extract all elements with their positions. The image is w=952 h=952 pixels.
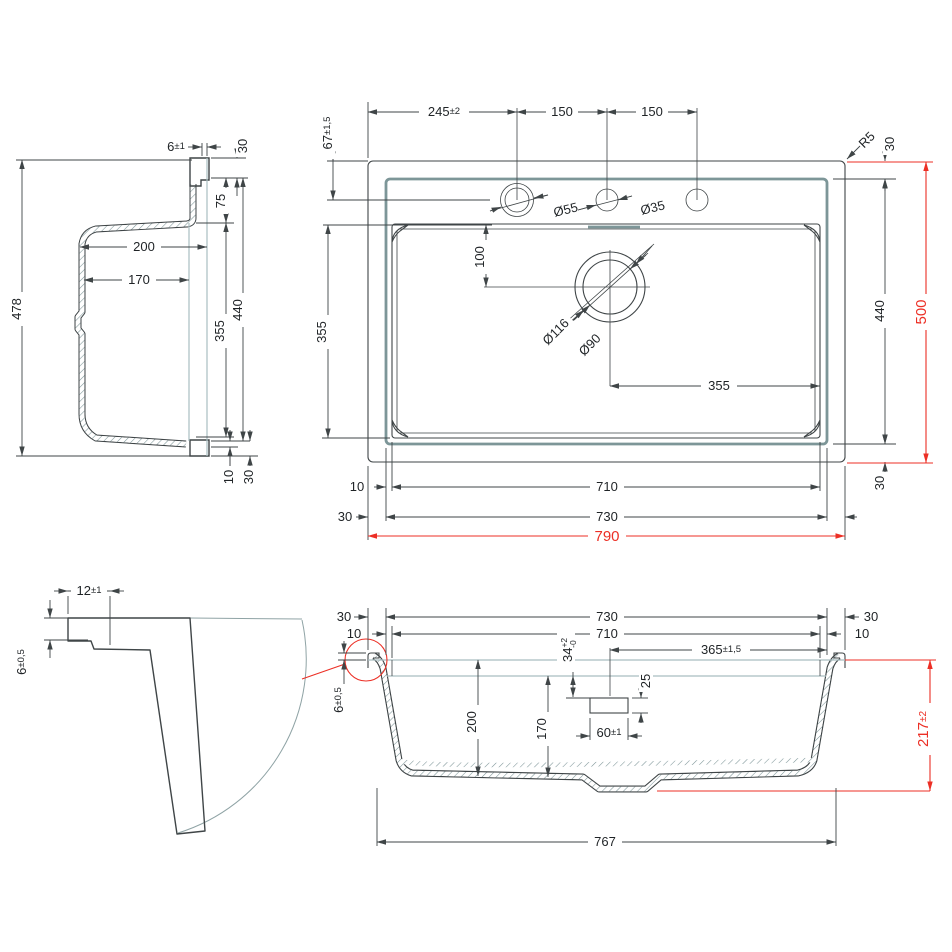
dim-label: 200 bbox=[133, 239, 155, 254]
dim-label: 730 bbox=[596, 609, 618, 624]
dim-top-drain-diameters: Ø116 Ø90 bbox=[536, 244, 654, 362]
dim-label: 365±1,5 bbox=[701, 642, 741, 657]
dim-label: 355 bbox=[708, 378, 730, 393]
dim-side-6: 6±1 bbox=[167, 139, 221, 156]
dim-section-25: 25 bbox=[632, 670, 653, 723]
dim-label: Ø55 bbox=[552, 199, 579, 220]
technical-drawing-canvas: 6±1 30 75 200 170 355 440 478 10 bbox=[0, 0, 952, 952]
dim-section-34: 34+2-0 bbox=[557, 630, 578, 697]
dim-label: Ø35 bbox=[639, 197, 666, 218]
dim-section-6: 6±0,5 bbox=[331, 641, 366, 713]
dim-section-365: 365±1,5 bbox=[610, 642, 827, 657]
dim-section-60: 60±1 bbox=[576, 718, 642, 740]
dim-section-170: 170 bbox=[534, 676, 549, 777]
dim-label: 100 bbox=[472, 246, 487, 268]
dim-label: 170 bbox=[128, 272, 150, 287]
dim-top-355-left: 355 bbox=[314, 225, 390, 438]
dim-top-hole-35: Ø35 bbox=[578, 196, 666, 218]
dim-detail-12: 12±1 bbox=[54, 583, 124, 645]
dim-label: 25 bbox=[638, 674, 653, 688]
dim-side-30-top: 30 bbox=[211, 135, 250, 196]
bowl-edge bbox=[392, 224, 820, 438]
dim-label: 60±1 bbox=[597, 725, 622, 740]
dim-label: 6±0,5 bbox=[331, 687, 346, 713]
drain-pocket bbox=[590, 698, 628, 713]
rim-cross-section bbox=[68, 618, 205, 834]
dim-label: 355 bbox=[212, 320, 227, 342]
side-top-lip bbox=[190, 158, 209, 186]
dim-top-bottom-rows: 10 710 30 730 790 bbox=[338, 442, 857, 545]
dim-side-355: 355 bbox=[196, 223, 234, 437]
dim-side-170: 170 bbox=[84, 272, 189, 287]
side-bottom-lip bbox=[190, 440, 209, 456]
dim-label: 200 bbox=[464, 711, 479, 733]
dim-label: 30 bbox=[241, 470, 256, 484]
dim-label: 10 bbox=[350, 479, 364, 494]
dim-label: 30 bbox=[872, 476, 887, 490]
detail-leader-line bbox=[302, 664, 345, 679]
bowl-corner bbox=[392, 225, 408, 242]
dim-label: 30 bbox=[882, 137, 897, 151]
dim-top-245-150-150: 245±2 150 150 bbox=[368, 102, 697, 158]
dim-top-hole-55: Ø55 bbox=[490, 195, 579, 220]
dim-top-500: 500 bbox=[847, 162, 933, 463]
dim-side-10: 10 bbox=[211, 430, 238, 488]
dim-label: 75 bbox=[213, 194, 228, 208]
side-view: 6±1 30 75 200 170 355 440 478 10 bbox=[9, 135, 258, 488]
dim-label: 440 bbox=[230, 299, 245, 321]
top-view: 245±2 150 150 67±1,5 R5 30 440 30 500 bbox=[314, 102, 933, 545]
dim-label: 478 bbox=[9, 298, 24, 320]
dim-top-100: 100 bbox=[323, 225, 492, 287]
bowl-corner bbox=[392, 420, 408, 437]
detail-view: 12±1 6±0,5 bbox=[14, 583, 345, 834]
dim-top-355-drain: 355 bbox=[610, 378, 820, 393]
dim-label: 30 bbox=[337, 609, 351, 624]
dim-label-red: 500 bbox=[913, 299, 930, 324]
dim-label: 12±1 bbox=[77, 583, 102, 598]
dim-label: 6±1 bbox=[167, 139, 185, 154]
sink-outer-edge bbox=[368, 161, 845, 462]
bowl-inner-edge bbox=[397, 229, 815, 433]
dim-label: 355 bbox=[314, 321, 329, 343]
section-view: 30 730 30 10 710 10 365±1,5 34+2-0 25 60… bbox=[331, 608, 936, 849]
dim-side-440: 440 bbox=[211, 178, 250, 441]
dim-label: 245±2 bbox=[428, 104, 460, 119]
dim-section-767: 767 bbox=[377, 788, 836, 849]
dim-label: 30 bbox=[864, 609, 878, 624]
dim-label: 767 bbox=[594, 834, 616, 849]
dim-label: 710 bbox=[596, 479, 618, 494]
dim-label: 150 bbox=[641, 104, 663, 119]
dim-top-440: 440 bbox=[833, 179, 896, 444]
dim-label: 440 bbox=[872, 300, 887, 322]
dim-section-top-rows: 30 730 30 10 710 10 bbox=[337, 608, 878, 658]
dim-side-478: 478 bbox=[9, 160, 192, 456]
dim-label-red: 790 bbox=[594, 528, 619, 545]
dim-label: 10 bbox=[855, 626, 869, 641]
dim-detail-6: 6±0,5 bbox=[14, 600, 88, 675]
dim-label: 30 bbox=[338, 509, 352, 524]
dim-label: 10 bbox=[347, 626, 361, 641]
dim-label: 34+2-0 bbox=[559, 638, 578, 662]
bowl-corner bbox=[804, 225, 820, 242]
dim-side-200: 200 bbox=[80, 239, 207, 254]
dim-label: 10 bbox=[221, 470, 236, 484]
sink-drawing-svg: 6±1 30 75 200 170 355 440 478 10 bbox=[0, 0, 952, 952]
dim-label: 67±1,5 bbox=[320, 117, 335, 150]
dim-label: 30 bbox=[235, 139, 250, 153]
dim-section-200: 200 bbox=[464, 660, 479, 776]
dim-top-67: 67±1,5 bbox=[320, 107, 490, 200]
dim-top-R5: R5 bbox=[847, 128, 878, 159]
dim-label: 170 bbox=[534, 718, 549, 740]
dim-label: 150 bbox=[551, 104, 573, 119]
dim-label: 710 bbox=[596, 626, 618, 641]
dim-label: 6±0,5 bbox=[14, 649, 29, 675]
dim-label: 730 bbox=[596, 509, 618, 524]
bowl-corner bbox=[804, 420, 820, 437]
sink-rim-edge bbox=[386, 179, 827, 444]
